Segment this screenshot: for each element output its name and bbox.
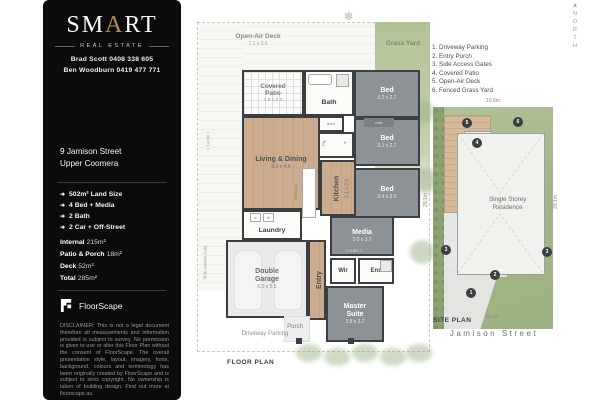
feature-cars: ➔ 2 Car + Off-Street: [60, 224, 125, 231]
area-label: Deck: [60, 263, 76, 270]
brand-logo-post: RT: [124, 12, 157, 38]
arrow-icon: ➔: [60, 213, 65, 220]
washer-label: w: [254, 216, 257, 220]
bathtub-icon: [308, 74, 332, 85]
fridge-label: fr: [340, 141, 350, 145]
room-kitchen: Kitchen 3.1 x 2.6: [320, 160, 356, 216]
width-dimension-label: < 6.5m >: [334, 248, 374, 253]
area-label: Total: [60, 275, 76, 282]
bush-icon: [324, 348, 350, 366]
sidebar-divider: [57, 182, 167, 183]
area-value: 285m²: [78, 275, 97, 282]
room-dim: 3.2 x 2.7: [377, 95, 396, 101]
site-dim-top: 16.8m: [473, 98, 513, 104]
area-internal: Internal215m²: [60, 239, 106, 246]
site-dim-right: 29.1m: [553, 182, 561, 222]
site-plan-title: SITE PLAN: [433, 317, 471, 324]
room-dim: 6.0 x 5.5: [243, 284, 291, 290]
brand-logo-accent-letter: A: [105, 12, 124, 38]
room-name: Living & Dining: [255, 156, 307, 164]
marker-5: 5: [462, 118, 472, 128]
room-name: Wir: [338, 268, 348, 274]
feature-baths: ➔ 2 Bath: [60, 213, 90, 220]
bush-icon: [296, 344, 322, 362]
agent-contact-2: Ben Woodburn 0419 477 771: [43, 67, 181, 74]
site-dim-bottom: 16.8m: [472, 315, 512, 320]
marker-4: 4: [472, 138, 482, 148]
side-dimension-label: < 14.0m >: [206, 106, 215, 176]
sidebar-divider: [57, 290, 167, 291]
room-name: Bed: [377, 87, 396, 95]
dining-bar-label: dining bar: [292, 172, 300, 212]
site-dim-left: 29.1m: [423, 180, 431, 220]
marker-1: 1: [466, 288, 476, 298]
driveway-parking-label: Driveway Parking: [238, 331, 292, 339]
porch-post: [296, 338, 302, 344]
room-bed-3: Bed 3.4 x 3.0: [354, 168, 420, 218]
arrow-icon: ➔: [60, 191, 65, 198]
feature-beds: ➔ 4 Bed + Media: [60, 202, 115, 209]
room-name: Media: [352, 229, 372, 237]
tree-icon: [410, 240, 434, 264]
address-line-2: Upper Coomera: [60, 159, 118, 168]
shower-icon: [380, 260, 392, 272]
feature-label: 2 Bath: [69, 213, 90, 220]
arrow-icon: ➔: [60, 224, 65, 231]
hedge-strip: [433, 107, 444, 329]
room-name: Bed: [377, 135, 396, 143]
brand-tagline-text: REAL ESTATE: [80, 43, 144, 49]
site-legend: 1. Driveway Parking 2. Entry Porch 3. Si…: [432, 44, 493, 96]
robe-label: robe: [375, 121, 382, 125]
area-patio-porch: Patio & Porch18m²: [60, 251, 122, 258]
room-dim: 3.1 x 2.7: [377, 143, 396, 149]
room-name: Master Suite: [336, 303, 374, 318]
legend-item: 1. Driveway Parking: [432, 44, 493, 53]
north-label: NORTH: [572, 11, 578, 51]
area-value: 52m²: [78, 263, 94, 270]
bush-icon: [406, 344, 432, 362]
room-dim: 3.8 x 3.7: [336, 319, 374, 325]
feature-label: 2 Car + Off-Street: [69, 224, 125, 231]
room-bed-1: Bed 3.2 x 2.7: [354, 70, 420, 118]
pantry-label: Pty: [322, 133, 326, 153]
legend-item: 3. Side Access Gates: [432, 61, 493, 70]
bush-icon: [352, 344, 378, 362]
dryer-label: dr: [267, 216, 270, 220]
street-name-label: Jamison Street: [434, 329, 554, 338]
marker-6: 6: [513, 117, 523, 127]
room-master-suite: Master Suite 3.8 x 3.7: [326, 286, 384, 342]
feature-land-size: ➔ 502m² Land Size: [60, 191, 122, 198]
room-dim: 8.0 x 4.6: [255, 164, 307, 170]
area-total: Total285m²: [60, 275, 97, 282]
marker-3-right: 3: [542, 247, 552, 257]
room-dim: 4.6 x 2.2: [253, 98, 293, 103]
north-arrow-icon: ➤: [572, 3, 579, 8]
arrow-icon: ➔: [60, 202, 65, 209]
brand-logo: SMART: [43, 12, 181, 39]
porch-post: [348, 338, 354, 344]
room-name: Kitchen: [333, 175, 340, 201]
room-dim: 3.1 x 2.6: [344, 175, 350, 201]
room-dim: 3.0 x 3.7: [352, 237, 372, 243]
area-label: Patio & Porch: [60, 251, 105, 258]
legend-item: 4. Covered Patio: [432, 70, 493, 79]
shower-icon: [336, 74, 349, 87]
legend-item: 5. Open-Air Deck: [432, 78, 493, 87]
room-name: Double Garage: [243, 268, 291, 283]
residence-label: Single Storey Residence: [480, 196, 536, 211]
tagline-rule-left: [55, 46, 75, 47]
address-line-1: 9 Jamison Street: [60, 147, 121, 156]
area-deck: Deck52m²: [60, 263, 94, 270]
side-access-gate-label: Side Access Gate: [203, 228, 212, 298]
brand-tagline: REAL ESTATE: [43, 43, 181, 49]
washer-icon: w: [250, 213, 261, 222]
room-name: Laundry: [259, 227, 286, 234]
site-plan: Single Storey Residence: [433, 107, 553, 329]
feature-label: 4 Bed + Media: [69, 202, 115, 209]
linen-label: linen: [327, 122, 335, 126]
bush-icon: [380, 348, 406, 366]
room-name: Covered Patio: [253, 83, 293, 97]
dryer-icon: dr: [263, 213, 274, 222]
area-label: Internal: [60, 239, 85, 246]
floorscape-logo-icon: [60, 299, 73, 312]
sidebar: SMART REAL ESTATE Brad Scott 0408 338 60…: [43, 0, 181, 400]
kitchen-island: [302, 168, 316, 218]
floorscape-name: FloorScape: [79, 301, 122, 311]
floorplan-brochure: SMART REAL ESTATE Brad Scott 0408 338 60…: [0, 0, 609, 400]
deck-name: Open-Air Deck: [214, 33, 302, 41]
room-name: Bed: [377, 186, 396, 194]
floorscape-branding: FloorScape: [60, 299, 122, 312]
legend-item: 6. Fenced Grass Yard: [432, 87, 493, 96]
plant-icon: ✽: [344, 10, 353, 23]
legend-item: 2. Entry Porch: [432, 53, 493, 62]
room-name: Bath: [321, 99, 336, 106]
area-value: 215m²: [87, 239, 106, 246]
room-entry: Entry: [308, 240, 326, 320]
marker-2: 2: [490, 270, 500, 280]
marker-3-left: 3: [441, 245, 451, 255]
area-value: 18m²: [107, 251, 123, 258]
grass-yard-label: Grass Yard: [384, 40, 422, 48]
robe-nook: robe: [364, 118, 394, 127]
room-dim: 3.4 x 3.0: [377, 194, 396, 200]
deck-dim: 7.1 x 3.6: [214, 41, 302, 49]
floor-plan-title: FLOOR PLAN: [227, 359, 274, 366]
linen-cupboard: linen: [318, 116, 344, 132]
site-residence: Single Storey Residence: [457, 133, 545, 275]
room-wir: Wir: [330, 258, 356, 284]
room-name: Entry: [316, 271, 323, 289]
tagline-rule-right: [149, 46, 169, 47]
brand-logo-pre: SM: [66, 12, 105, 38]
disclaimer-text: DISCLAIMER: This is not a legal document…: [60, 323, 169, 398]
agent-contact-1: Brad Scott 0408 338 605: [43, 56, 181, 63]
room-covered-patio: Covered Patio 4.6 x 2.2: [242, 70, 304, 116]
deck-label: Open-Air Deck 7.1 x 3.6: [214, 33, 302, 48]
feature-label: 502m² Land Size: [69, 191, 122, 198]
